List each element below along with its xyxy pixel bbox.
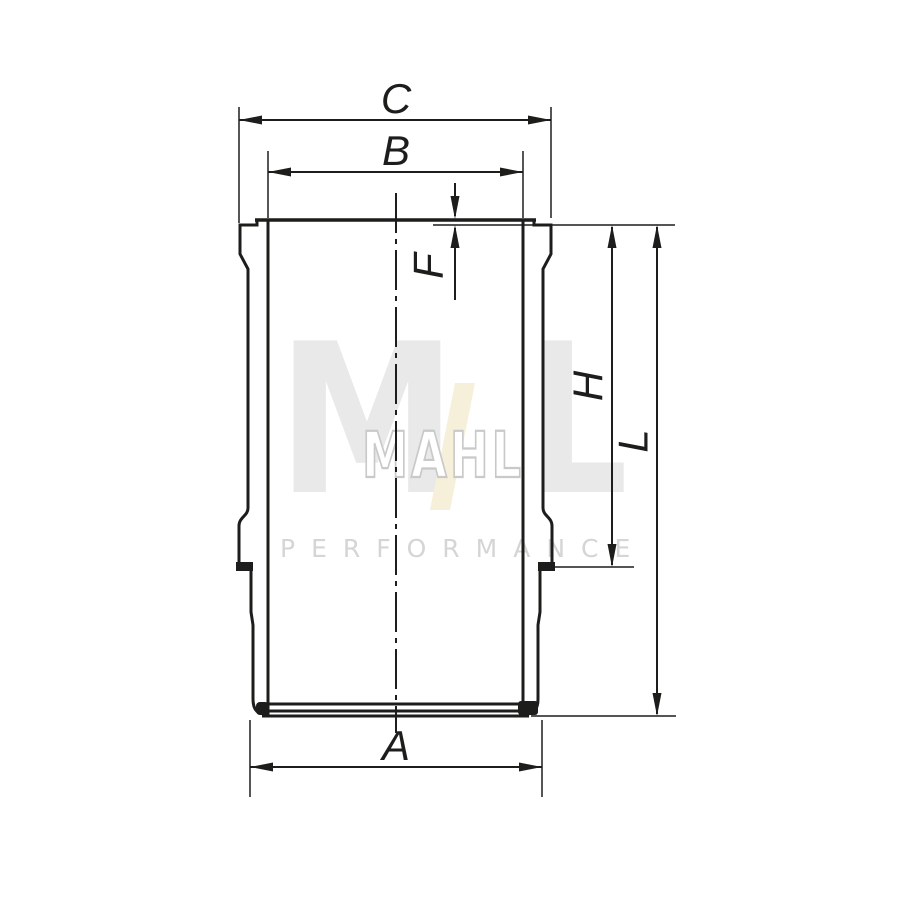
dim-label-c: C bbox=[381, 75, 412, 122]
arrowhead-l-top bbox=[653, 225, 662, 248]
arrowhead-a-right bbox=[519, 763, 542, 772]
mahle-watermark: M L MAHL PERFORMANCE bbox=[277, 300, 646, 563]
arrowhead-c-right bbox=[528, 116, 551, 125]
arrowhead-c-left bbox=[239, 116, 262, 125]
dim-label-a: A bbox=[379, 722, 410, 769]
dim-label-l: L bbox=[610, 429, 657, 452]
watermark-subtitle: PERFORMANCE bbox=[280, 534, 646, 563]
arrowhead-h-top bbox=[608, 225, 617, 248]
arrowhead-l-bottom bbox=[653, 693, 662, 716]
arrowhead-b-right bbox=[500, 168, 523, 177]
bottom-left-corner bbox=[256, 702, 269, 715]
dim-label-b: B bbox=[382, 127, 410, 174]
bottom-right-corner bbox=[518, 701, 538, 715]
dim-label-f: F bbox=[405, 251, 452, 279]
diagram-canvas: M L MAHL PERFORMANCE bbox=[0, 0, 900, 900]
cylinder-liner-drawing: M L MAHL PERFORMANCE bbox=[0, 0, 900, 900]
dimension-f: F bbox=[405, 183, 675, 300]
watermark-outline-text: MAHL bbox=[362, 419, 524, 492]
arrowhead-a-left bbox=[250, 763, 273, 772]
dim-label-h: H bbox=[565, 370, 612, 401]
arrowhead-f-down bbox=[451, 196, 460, 219]
arrowhead-f-up bbox=[451, 225, 460, 248]
left-seat-step bbox=[236, 562, 253, 571]
liner-left-wall bbox=[239, 220, 268, 714]
arrowhead-b-left bbox=[268, 168, 291, 177]
dimension-a: A bbox=[250, 720, 542, 797]
